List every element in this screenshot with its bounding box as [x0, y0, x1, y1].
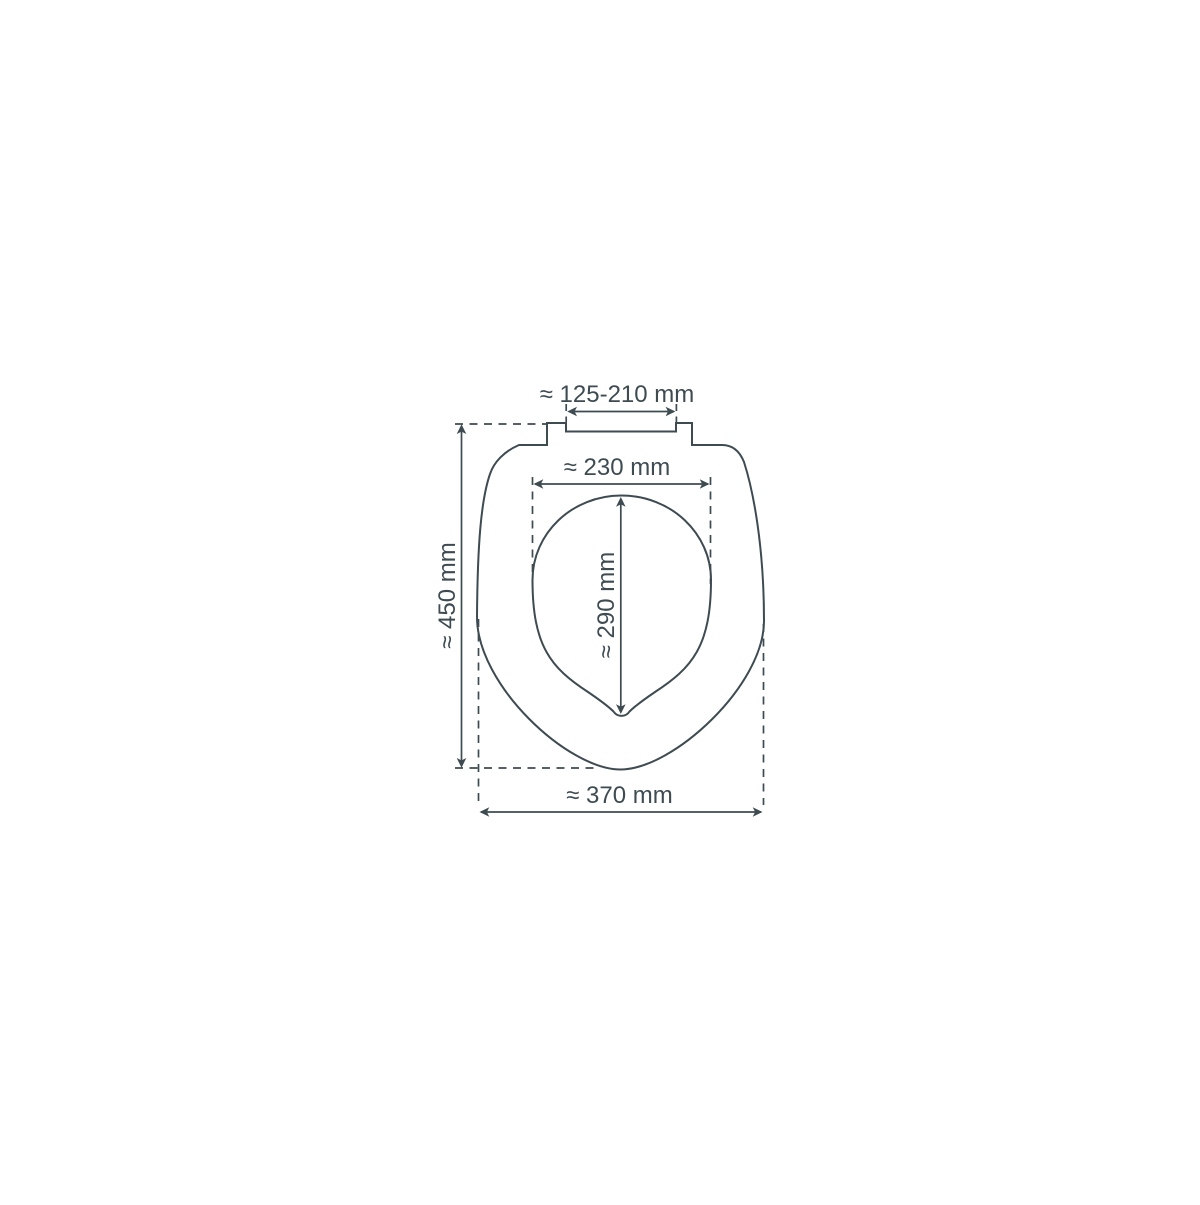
- svg-text:≈ 450 mm: ≈ 450 mm: [434, 542, 461, 649]
- svg-text:≈ 370 mm: ≈ 370 mm: [566, 782, 673, 809]
- svg-text:≈ 230 mm: ≈ 230 mm: [564, 454, 671, 481]
- svg-text:≈ 290 mm: ≈ 290 mm: [593, 552, 620, 659]
- svg-text:≈ 125-210 mm: ≈ 125-210 mm: [540, 381, 695, 408]
